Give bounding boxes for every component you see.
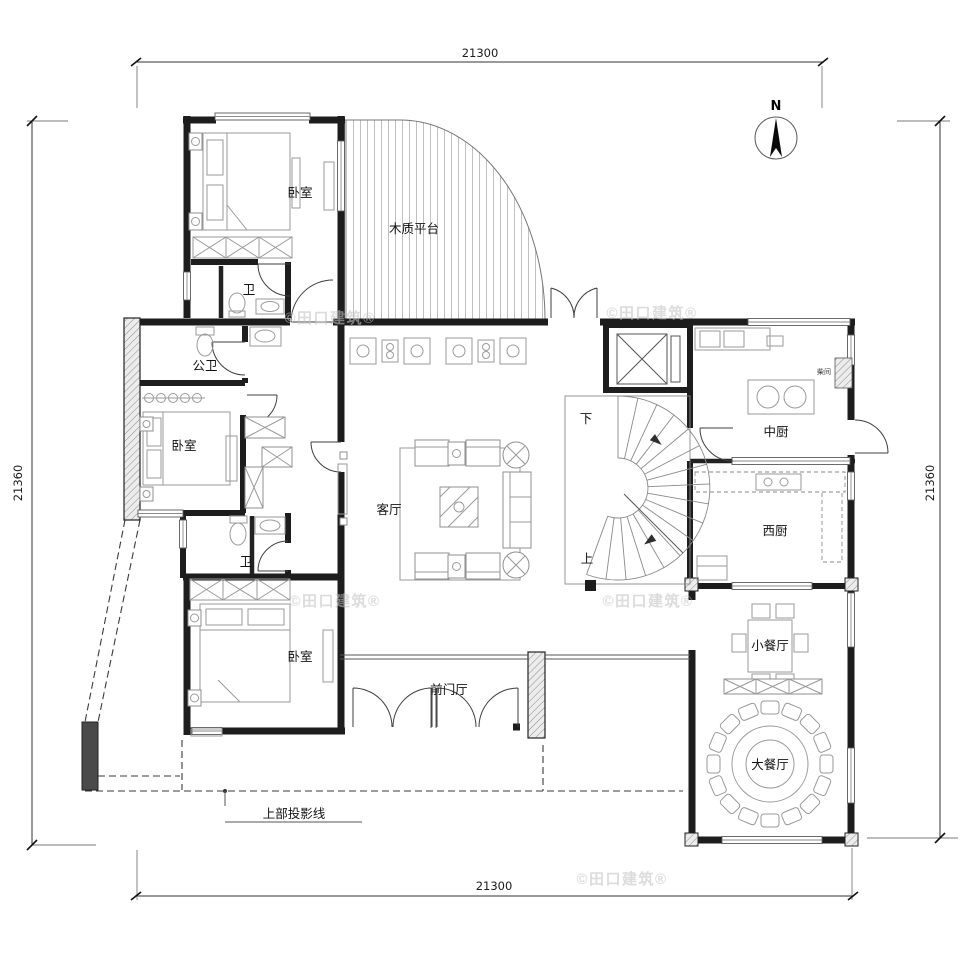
stair-label-down: 下: [580, 412, 593, 426]
closet-cabinets: [245, 417, 292, 508]
dimension-right: 21360: [867, 116, 958, 843]
room-label-western-kitchen: 西厨: [762, 524, 787, 538]
projection-note: 上部投影线: [223, 789, 362, 822]
room-label-small-dining: 小餐厅: [751, 638, 789, 653]
watermark-5: ©田口建筑®: [576, 870, 667, 888]
entry-pillar: [528, 652, 545, 738]
watermark-4: ©田口建筑®: [602, 592, 693, 610]
wardrobe-top: [193, 237, 292, 258]
dim-right-value: 21360: [923, 465, 937, 502]
floor-plan-drawing: 21300 21300 21360 21360 N 卧室 卫 木质平台 公卫 卧…: [0, 0, 960, 960]
exterior-pier: [82, 722, 98, 790]
room-label-large-dining: 大餐厅: [751, 757, 789, 772]
watermark-1: ©田口建筑®: [284, 309, 375, 327]
floor-plan-page: 21300 21300 21360 21360 N 卧室 卫 木质平台 公卫 卧…: [0, 0, 960, 960]
elevator: [617, 334, 680, 384]
dim-bottom-value: 21300: [476, 879, 513, 893]
room-label-entry-hall: 前门厅: [430, 682, 468, 697]
stair-label-up: 上: [581, 552, 594, 566]
room-label-living: 客厅: [376, 502, 401, 517]
room-label-bath-mid: 卫: [240, 555, 253, 569]
room-label-storage: 柴间: [817, 367, 831, 376]
room-label-bedroom-top: 卧室: [287, 185, 312, 200]
wood-platform-area: [345, 120, 545, 320]
watermark-3: ©田口建筑®: [289, 592, 380, 610]
dimension-top: 21300: [131, 46, 828, 108]
watermark-2: ©田口建筑®: [606, 304, 697, 322]
room-label-bedroom-mid: 卧室: [171, 438, 196, 453]
compass-n-label: N: [771, 99, 782, 114]
room-label-public-bath: 公卫: [192, 359, 217, 373]
room-label-wood-platform: 木质平台: [389, 221, 439, 236]
dim-left-value: 21360: [11, 465, 25, 502]
compass-needle: [770, 118, 782, 157]
room-label-bath-top: 卫: [243, 283, 256, 297]
room-label-chinese-kitchen: 中厨: [763, 424, 788, 439]
doors: [212, 264, 888, 727]
dim-top-value: 21300: [462, 46, 499, 60]
living-cabinets: [350, 338, 526, 364]
room-label-bedroom-bottom: 卧室: [287, 649, 312, 664]
sofa-group: [400, 440, 531, 580]
dimension-bottom: 21300: [131, 848, 858, 900]
projection-note-label: 上部投影线: [263, 806, 326, 821]
north-compass: N: [755, 99, 797, 159]
wardrobe-bottom: [190, 579, 290, 600]
